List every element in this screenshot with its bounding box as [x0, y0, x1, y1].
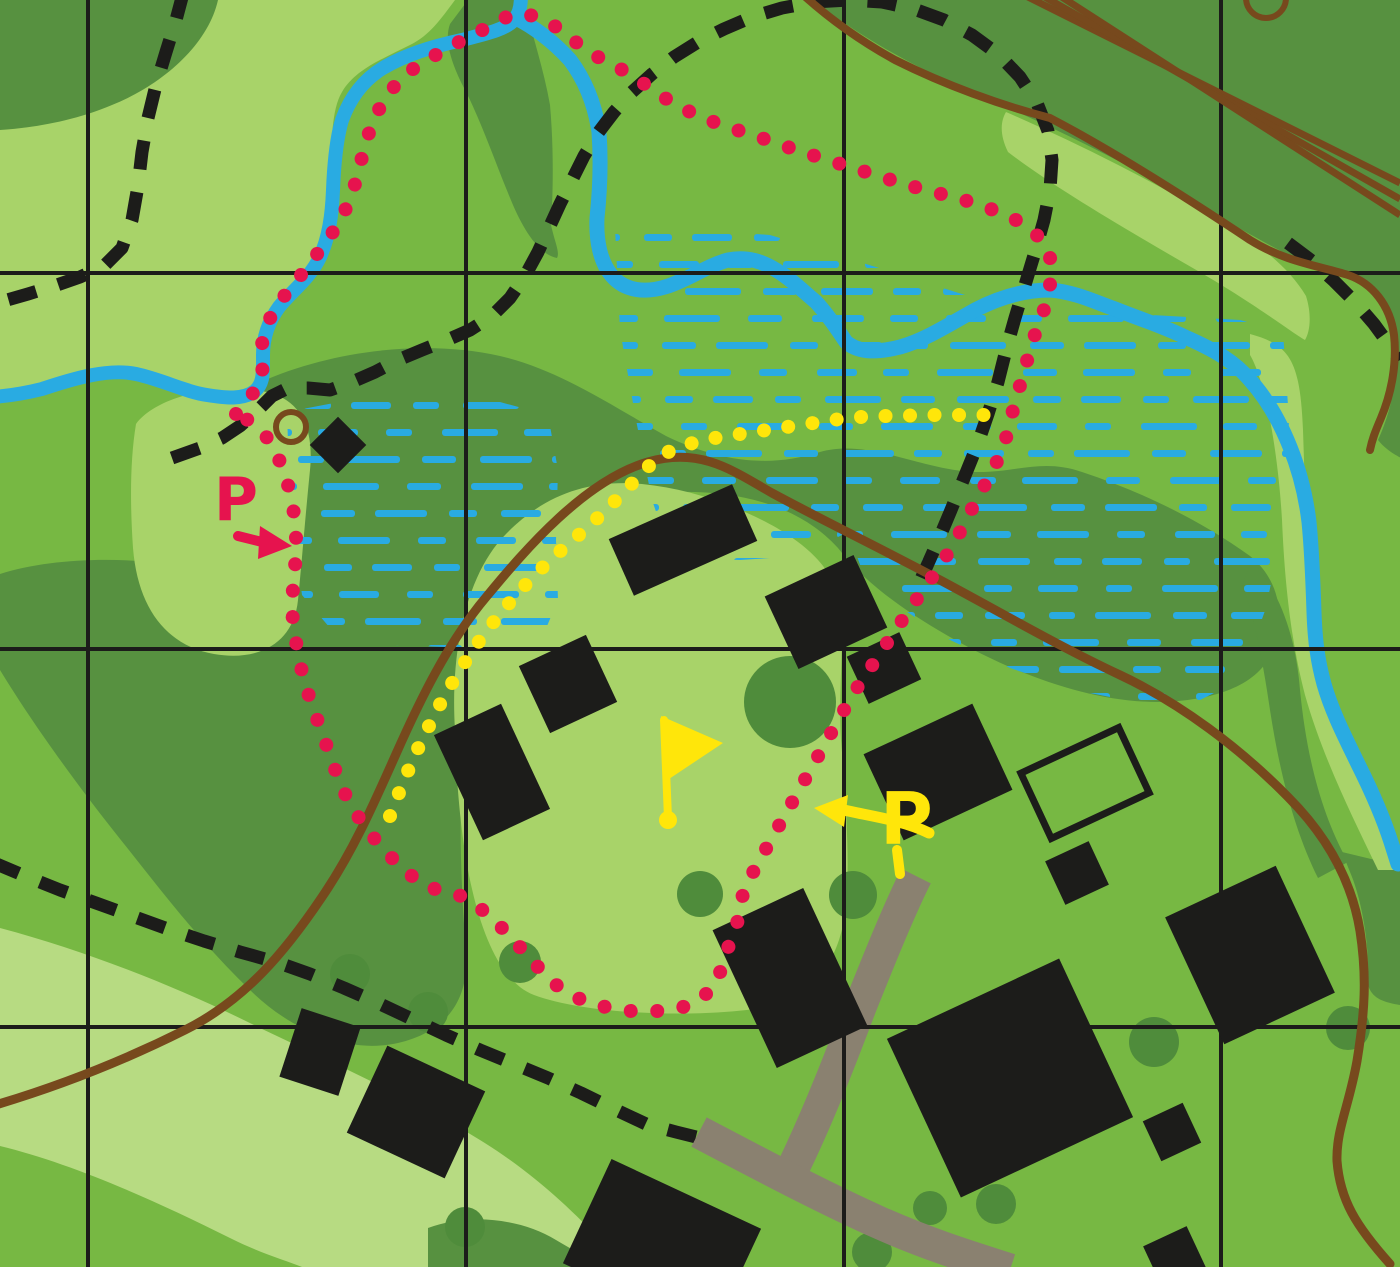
map-layers	[0, 0, 1400, 1267]
trail-map-canvas[interactable]: P P	[0, 0, 1400, 1267]
flag-base	[659, 811, 677, 829]
tree-icon	[677, 871, 723, 917]
tree-icon	[976, 1184, 1016, 1224]
tree-icon	[1129, 1017, 1179, 1067]
tree-icon	[913, 1191, 947, 1225]
tree-icon	[829, 871, 877, 919]
trail-map[interactable]: P P	[0, 0, 1400, 1267]
parking-sign-post	[897, 850, 900, 874]
tree-icon	[744, 656, 836, 748]
red-parking-label: P	[214, 465, 258, 535]
